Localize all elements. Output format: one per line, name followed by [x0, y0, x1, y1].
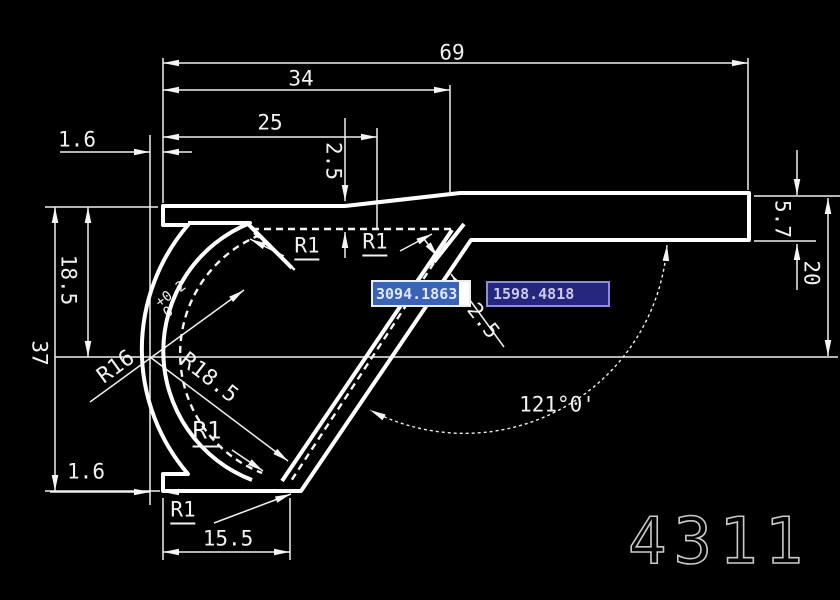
- autocad-drawing-area[interactable]: 4311 69 34 25 2.5 1.6 18.5 37 1.6 15.5 5…: [0, 0, 840, 600]
- dynamic-input-x-field[interactable]: 3094.1863: [371, 280, 471, 307]
- leader-r1-bottom: [214, 494, 291, 523]
- dim-69-label: 69: [439, 43, 464, 64]
- y-field-value[interactable]: 1598.4818: [493, 285, 574, 303]
- dim-5-7-label: 5.7: [772, 200, 793, 238]
- arm-upper-edge: [282, 230, 452, 481]
- radius-r1-groove-right-label: R1: [362, 230, 387, 257]
- angle-121-label: 121°0': [519, 395, 595, 416]
- radius-r1-arc-label: R1: [193, 417, 222, 448]
- dim-37-label: 37: [29, 340, 50, 365]
- dim-15-5-label: 15.5: [203, 529, 254, 550]
- dim-18-5-label: 18.5: [58, 255, 79, 306]
- dim-34-label: 34: [288, 69, 313, 90]
- x-field-value[interactable]: 3094.1863: [373, 282, 459, 305]
- radius-r1-bottom-label: R1: [170, 498, 195, 525]
- dim-20-label: 20: [801, 260, 822, 285]
- drawing-number: 4311: [628, 505, 810, 579]
- dashed-contour-lines: [180, 229, 458, 481]
- dim-1-6-top-label: 1.6: [58, 130, 96, 151]
- dim-25-label: 25: [257, 113, 282, 134]
- arm-dashed-line: [291, 243, 447, 481]
- part-outline: [142, 193, 749, 491]
- dim-2-5-groove-label: 2.5: [323, 142, 344, 180]
- dynamic-input-y-field[interactable]: 1598.4818: [486, 281, 610, 307]
- radius-r1-groove-left-label: R1: [294, 234, 319, 261]
- leader-lines: [50, 118, 797, 523]
- dim-1-6-bottom-label: 1.6: [67, 462, 105, 483]
